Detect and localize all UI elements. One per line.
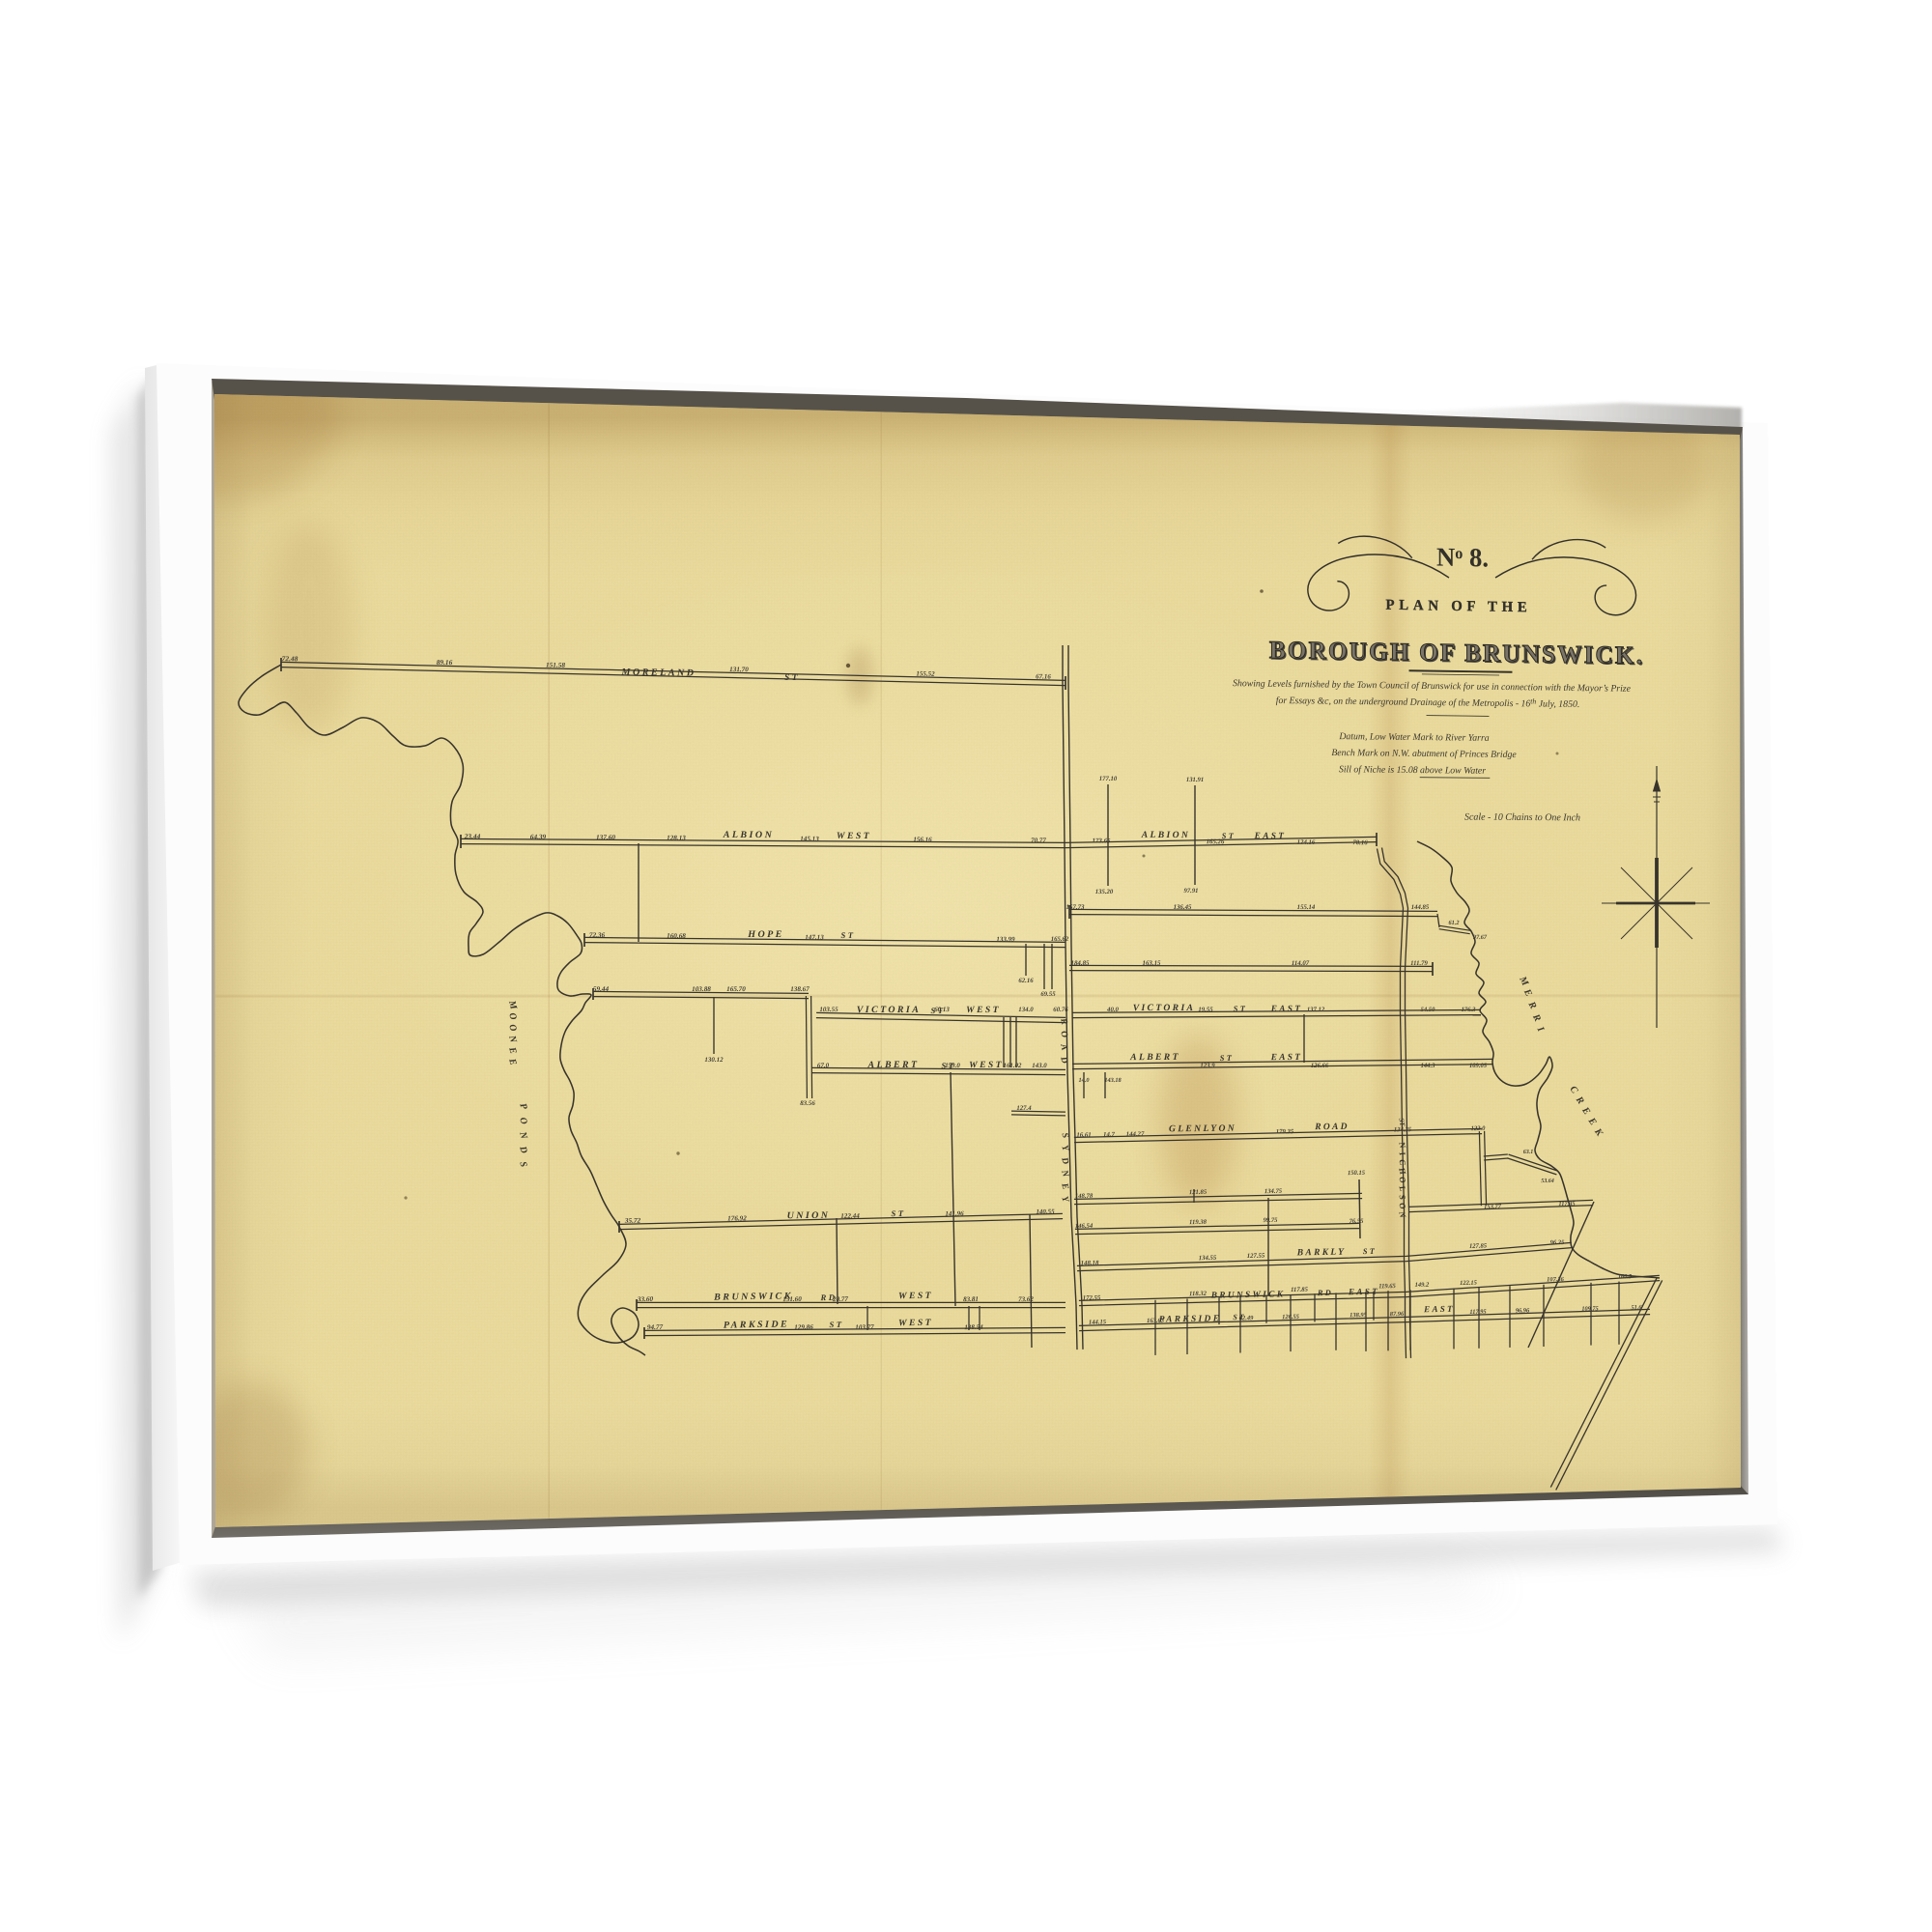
- svg-text:MORELAND: MORELAND: [620, 668, 696, 679]
- svg-text:137.60: 137.60: [596, 834, 615, 841]
- svg-text:148.18: 148.18: [1081, 1260, 1099, 1266]
- svg-text:160.68: 160.68: [667, 932, 686, 940]
- svg-text:140.55: 140.55: [1036, 1207, 1055, 1215]
- svg-text:145.13: 145.13: [800, 835, 819, 842]
- svg-text:ST: ST: [1233, 1313, 1245, 1321]
- svg-text:123.9: 123.9: [1200, 1063, 1215, 1069]
- svg-text:127.55: 127.55: [1247, 1253, 1265, 1260]
- svg-text:144.27: 144.27: [1126, 1131, 1145, 1138]
- svg-text:136.45: 136.45: [1174, 904, 1192, 911]
- svg-text:EAST: EAST: [1270, 1053, 1303, 1063]
- svg-text:119.65: 119.65: [1378, 1283, 1396, 1290]
- svg-text:117.85: 117.85: [1291, 1287, 1308, 1293]
- svg-text:54.50: 54.50: [1421, 1007, 1436, 1013]
- svg-text:14.0: 14.0: [1078, 1077, 1090, 1084]
- svg-text:119.38: 119.38: [1189, 1219, 1207, 1226]
- svg-text:137.12: 137.12: [1307, 1007, 1325, 1013]
- svg-text:VICTORIA: VICTORIA: [857, 1005, 921, 1015]
- svg-text:69.55: 69.55: [1040, 991, 1056, 998]
- svg-text:BARKLY: BARKLY: [1296, 1247, 1346, 1259]
- svg-text:PARKSIDE: PARKSIDE: [724, 1319, 789, 1330]
- svg-text:103.77: 103.77: [855, 1323, 874, 1331]
- svg-text:61.2: 61.2: [1448, 920, 1460, 926]
- svg-text:PARKSIDE: PARKSIDE: [1159, 1314, 1222, 1324]
- svg-text:ST: ST: [1234, 1004, 1247, 1013]
- svg-text:23.44: 23.44: [464, 833, 481, 840]
- svg-text:ST: ST: [784, 672, 800, 682]
- svg-text:PLAN OF THE: PLAN OF THE: [1385, 598, 1531, 616]
- svg-text:WEST: WEST: [969, 1060, 1004, 1070]
- svg-text:96.96: 96.96: [1516, 1307, 1530, 1314]
- svg-text:165.70: 165.70: [726, 985, 746, 993]
- svg-text:BRUNSWICK: BRUNSWICK: [1210, 1290, 1286, 1300]
- svg-text:WEST: WEST: [898, 1318, 933, 1329]
- svg-text:161.02: 161.02: [1004, 1063, 1022, 1069]
- svg-text:129.86: 129.86: [794, 1323, 813, 1331]
- svg-text:ALBERT: ALBERT: [1129, 1052, 1180, 1063]
- svg-text:EAST: EAST: [1254, 832, 1287, 841]
- svg-text:176.92: 176.92: [727, 1214, 747, 1222]
- svg-text:126.66: 126.66: [1311, 1063, 1329, 1069]
- svg-text:No 8.: No 8.: [1436, 542, 1489, 572]
- svg-text:35.72: 35.72: [624, 1217, 641, 1225]
- svg-text:ST: ST: [942, 1061, 956, 1070]
- svg-text:83.81: 83.81: [963, 1295, 979, 1303]
- svg-text:131.70: 131.70: [729, 666, 749, 673]
- svg-text:153.77: 153.77: [1484, 1204, 1501, 1210]
- svg-text:ST: ST: [1222, 831, 1236, 840]
- svg-text:ALBERT: ALBERT: [867, 1060, 920, 1070]
- svg-text:163.15: 163.15: [1143, 960, 1161, 967]
- svg-text:ST: ST: [829, 1320, 843, 1329]
- svg-text:EAST: EAST: [1348, 1287, 1379, 1297]
- svg-text:118.32: 118.32: [1189, 1291, 1207, 1297]
- svg-text:149.2: 149.2: [1415, 1282, 1430, 1289]
- svg-text:WEST: WEST: [966, 1005, 1001, 1015]
- svg-text:ALBION: ALBION: [723, 830, 775, 840]
- svg-text:72.48: 72.48: [282, 654, 298, 663]
- svg-text:177.10: 177.10: [1099, 776, 1118, 782]
- svg-text:64.39: 64.39: [530, 834, 547, 841]
- svg-text:109.05: 109.05: [1469, 1063, 1488, 1069]
- svg-text:ST: ST: [892, 1208, 906, 1218]
- svg-text:67.16: 67.16: [1036, 672, 1051, 680]
- svg-text:WEST: WEST: [837, 831, 871, 841]
- svg-text:134.55: 134.55: [1199, 1255, 1217, 1262]
- svg-text:ST: ST: [840, 930, 855, 940]
- svg-text:144.85: 144.85: [1411, 904, 1430, 911]
- svg-text:19.55: 19.55: [1198, 1007, 1213, 1013]
- svg-text:RD: RD: [819, 1293, 837, 1302]
- svg-text:WEST: WEST: [898, 1291, 933, 1302]
- svg-text:138.95: 138.95: [1350, 1312, 1367, 1319]
- svg-text:14.7: 14.7: [1103, 1131, 1115, 1138]
- svg-text:ST: ST: [1363, 1247, 1377, 1256]
- svg-text:147.13: 147.13: [805, 933, 824, 941]
- svg-text:Datum, Low Water Mark to River: Datum, Low Water Mark to River Yarra: [1338, 731, 1489, 744]
- svg-text:138.54: 138.54: [964, 1323, 983, 1331]
- svg-text:ST: ST: [1220, 1053, 1234, 1063]
- svg-text:165.62: 165.62: [1051, 936, 1069, 943]
- svg-text:63.1: 63.1: [1523, 1150, 1534, 1155]
- svg-text:122.0: 122.0: [1471, 1125, 1486, 1132]
- svg-text:148.78: 148.78: [1075, 1193, 1094, 1200]
- svg-text:EAST: EAST: [1270, 1005, 1303, 1014]
- svg-text:172.55: 172.55: [1083, 1294, 1101, 1301]
- svg-text:103.88: 103.88: [692, 985, 711, 993]
- svg-text:59.44: 59.44: [593, 985, 610, 993]
- svg-text:ROAD: ROAD: [1314, 1122, 1350, 1132]
- svg-text:117.35: 117.35: [1558, 1201, 1576, 1207]
- svg-text:78.16: 78.16: [1352, 839, 1368, 846]
- svg-text:111.79: 111.79: [1410, 960, 1428, 967]
- svg-text:157.73: 157.73: [1065, 903, 1085, 911]
- svg-text:150.15: 150.15: [1348, 1170, 1366, 1177]
- svg-text:53.64: 53.64: [1541, 1179, 1554, 1184]
- svg-text:76.55: 76.55: [1350, 1218, 1364, 1225]
- svg-text:72.36: 72.36: [589, 931, 606, 939]
- svg-text:103.55: 103.55: [819, 1006, 838, 1013]
- svg-text:124.16: 124.16: [1297, 839, 1316, 846]
- svg-text:96.25: 96.25: [1550, 1239, 1565, 1246]
- svg-text:114.07: 114.07: [1292, 960, 1310, 967]
- svg-text:184.85: 184.85: [1070, 959, 1090, 967]
- svg-text:70.77: 70.77: [1031, 837, 1046, 844]
- svg-text:134.75: 134.75: [1264, 1188, 1283, 1195]
- svg-text:176.3: 176.3: [1462, 1007, 1476, 1013]
- svg-text:Bench Mark on N.W. abutment of: Bench Mark on N.W. abutment of Princes B…: [1331, 748, 1517, 760]
- svg-text:GLENLYON: GLENLYON: [1169, 1123, 1236, 1135]
- svg-text:156.16: 156.16: [913, 836, 932, 843]
- svg-text:BRUNSWICK: BRUNSWICK: [713, 1291, 793, 1302]
- svg-text:122.44: 122.44: [840, 1212, 860, 1220]
- svg-text:155.14: 155.14: [1297, 904, 1316, 911]
- svg-text:16.61: 16.61: [1076, 1132, 1091, 1139]
- svg-text:99.75: 99.75: [1264, 1217, 1279, 1224]
- svg-text:133.99: 133.99: [996, 935, 1015, 943]
- svg-text:134.0: 134.0: [1018, 1007, 1034, 1013]
- svg-text:138.67: 138.67: [790, 985, 810, 993]
- svg-text:144.15: 144.15: [1089, 1319, 1107, 1325]
- svg-text:122.15: 122.15: [1460, 1280, 1478, 1287]
- svg-text:62.16: 62.16: [1018, 978, 1034, 984]
- svg-text:128.13: 128.13: [667, 834, 686, 841]
- svg-text:RD: RD: [1317, 1289, 1333, 1297]
- svg-text:151.58: 151.58: [546, 662, 565, 669]
- svg-text:89.16: 89.16: [437, 659, 453, 667]
- svg-text:127.85: 127.85: [1469, 1243, 1488, 1250]
- svg-text:127.4: 127.4: [1016, 1105, 1032, 1112]
- svg-text:87.96: 87.96: [1390, 1311, 1405, 1318]
- svg-text:UNION: UNION: [787, 1210, 831, 1221]
- svg-text:131.91: 131.91: [1186, 777, 1204, 783]
- svg-text:ALBION: ALBION: [1141, 830, 1190, 840]
- svg-text:BOROUGH OF BRUNSWICK.: BOROUGH OF BRUNSWICK.: [1269, 636, 1644, 669]
- svg-text:94.77: 94.77: [647, 1323, 664, 1331]
- svg-text:135.20: 135.20: [1095, 889, 1114, 895]
- svg-text:134.35: 134.35: [1394, 1126, 1412, 1133]
- svg-text:VICTORIA: VICTORIA: [1133, 1003, 1196, 1013]
- svg-text:67.0: 67.0: [817, 1062, 830, 1069]
- svg-text:HOPE: HOPE: [747, 929, 784, 940]
- svg-text:141.96: 141.96: [945, 1209, 964, 1217]
- svg-text:Scale - 10 Chains to One Inch: Scale - 10 Chains to One Inch: [1464, 811, 1580, 823]
- svg-text:179.35: 179.35: [1276, 1128, 1294, 1135]
- svg-text:144.3: 144.3: [1421, 1063, 1436, 1069]
- svg-text:ST: ST: [931, 1006, 946, 1015]
- svg-text:155.52: 155.52: [916, 669, 935, 677]
- svg-text:121.85: 121.85: [1189, 1189, 1207, 1196]
- svg-text:40.0: 40.0: [1106, 1007, 1119, 1013]
- svg-text:EAST: EAST: [1423, 1304, 1455, 1315]
- svg-text:33.60: 33.60: [637, 1295, 654, 1303]
- svg-text:97.91: 97.91: [1184, 888, 1199, 895]
- svg-text:107.36: 107.36: [1547, 1276, 1564, 1283]
- svg-text:83.56: 83.56: [800, 1100, 815, 1107]
- svg-text:143.18: 143.18: [1104, 1077, 1122, 1084]
- svg-text:Sill of Niche is 15.08 above L: Sill of Niche is 15.08 above Low Water: [1339, 764, 1486, 777]
- svg-text:130.12: 130.12: [704, 1057, 724, 1064]
- svg-text:143.0: 143.0: [1032, 1063, 1047, 1069]
